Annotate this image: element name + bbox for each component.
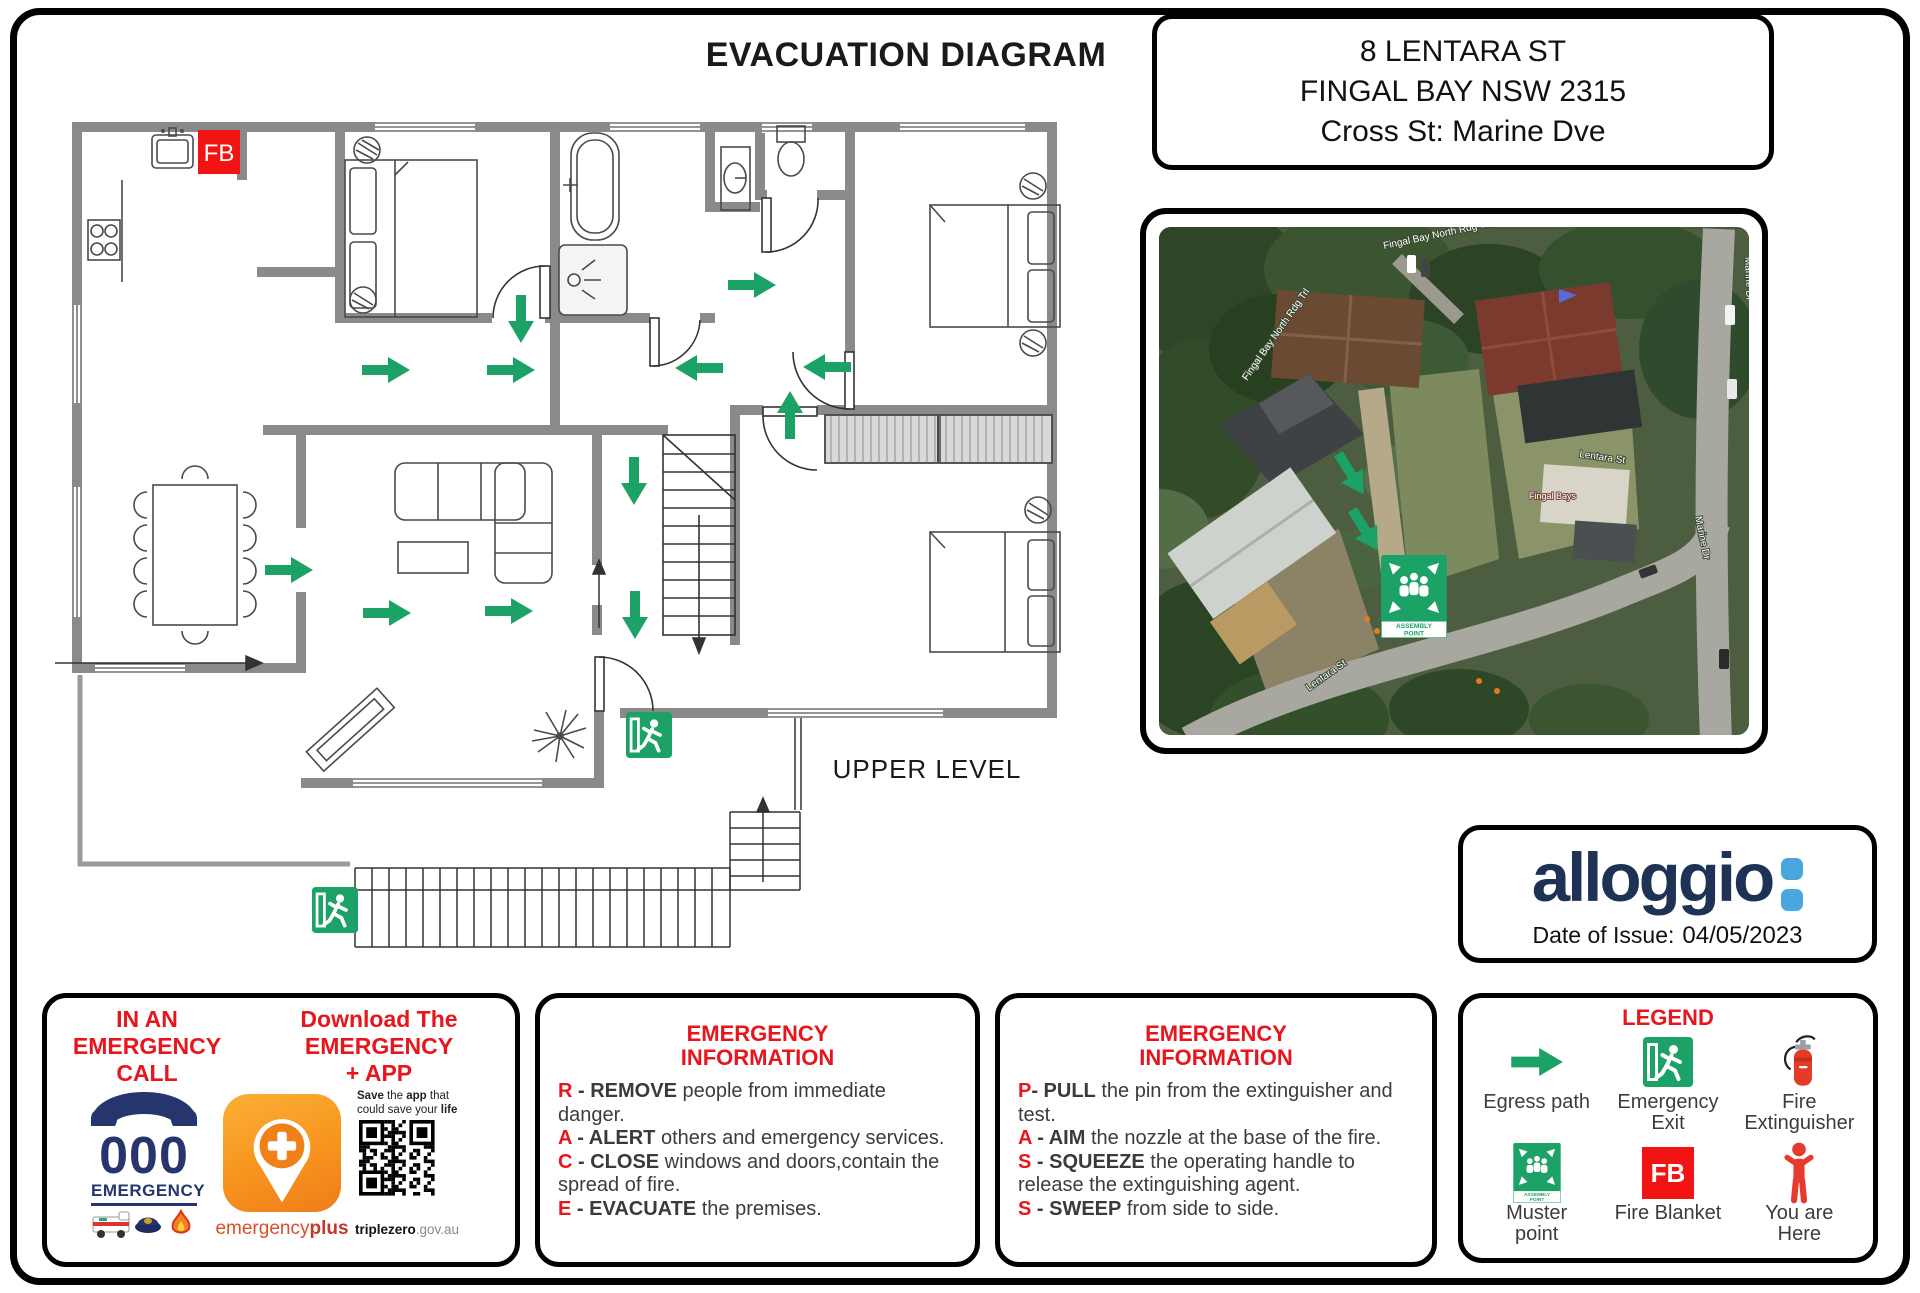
legend-label: You are Here <box>1744 1203 1854 1245</box>
race-body: R - REMOVE people from immediate danger.… <box>540 1070 975 1221</box>
call-heading-line: EMERGENCY <box>61 1033 233 1060</box>
furniture <box>88 126 1060 771</box>
legend-item-egress-path: Egress path <box>1471 1032 1602 1143</box>
info-line: R - REMOVE people from immediate danger. <box>558 1080 957 1127</box>
legend-label: Muster point <box>1482 1203 1592 1245</box>
legend-label: Egress path <box>1483 1092 1590 1113</box>
emergency-number: 000 <box>91 1131 197 1181</box>
info-line: A - AIM the nozzle at the base of the fi… <box>1018 1127 1414 1151</box>
egress-arrow-icon <box>265 557 313 583</box>
info-line: S - SWEEP from side to side. <box>1018 1198 1414 1222</box>
address-line1: 8 LENTARA ST <box>1360 32 1566 72</box>
brand-logo: alloggio <box>1532 838 1772 918</box>
external-stairs <box>355 718 801 947</box>
police-hat-icon <box>135 1218 161 1234</box>
date-of-issue-value: 04/05/2023 <box>1682 922 1802 949</box>
fire-icon <box>173 1211 190 1233</box>
evacuation-diagram-page: EVACUATION DIAGRAM 8 LENTARA ST FINGAL B… <box>0 0 1920 1293</box>
download-heading-line: Download The <box>243 1006 515 1033</box>
you-are-here-icon <box>1780 1143 1818 1203</box>
poi-label: Fingal Bays <box>1529 491 1577 501</box>
address-line3: Cross St: Marine Dve <box>1320 112 1605 152</box>
emergency-services-icons <box>91 1209 197 1239</box>
egress-arrow-icon <box>485 598 533 624</box>
download-heading-line: + APP <box>243 1060 515 1087</box>
page-title: EVACUATION DIAGRAM <box>706 36 1107 75</box>
triplezero-site: triplezero.gov.au <box>355 1222 459 1237</box>
legend-label: Emergency Exit <box>1613 1092 1723 1134</box>
pass-title-line: INFORMATION <box>1000 1046 1432 1070</box>
address-line2: FINGAL BAY NSW 2315 <box>1300 72 1626 112</box>
app-name-bold: plus <box>309 1218 348 1239</box>
call-heading-line: CALL <box>61 1060 233 1087</box>
emergency-exit-icon <box>312 887 358 933</box>
satellite-map: Fingal Bay North Rdg Trl Fingal Bay Nort… <box>1159 227 1749 735</box>
muster-point-icon <box>1513 1143 1561 1203</box>
race-title-line: INFORMATION <box>540 1046 975 1070</box>
legend-item-fire-blanket: FB Fire Blanket <box>1602 1143 1733 1254</box>
race-info-panel: EMERGENCY INFORMATION R - REMOVE people … <box>535 993 980 1267</box>
info-line: P- PULL the pin from the extinguisher an… <box>1018 1080 1414 1127</box>
level-label: UPPER LEVEL <box>833 754 1022 785</box>
app-name-regular: emergency <box>215 1218 309 1239</box>
egress-arrow-icon <box>675 355 723 381</box>
fire-blanket-icon: FB <box>1642 1143 1694 1203</box>
emergency-exit-icon <box>1643 1032 1693 1092</box>
logo-colon-icon <box>1781 858 1803 911</box>
legend-panel: LEGEND Egress path Emergency Exit Fire E… <box>1458 993 1878 1263</box>
emergency-number-caption: EMERGENCY <box>91 1181 197 1206</box>
legend-item-emergency-exit: Emergency Exit <box>1602 1032 1733 1143</box>
brand-box: alloggio Date of Issue:04/05/2023 <box>1458 825 1877 963</box>
pass-body: P- PULL the pin from the extinguisher an… <box>1000 1070 1432 1221</box>
info-line: C - CLOSE windows and doors,contain the … <box>558 1151 957 1198</box>
muster-point-icon <box>1381 555 1447 638</box>
fire-extinguisher-icon <box>1778 1032 1820 1092</box>
deck <box>78 675 350 866</box>
download-heading-line: EMERGENCY <box>243 1033 515 1060</box>
address-box: 8 LENTARA ST FINGAL BAY NSW 2315 Cross S… <box>1152 14 1774 170</box>
site-map-box: Fingal Bay North Rdg Trl Fingal Bay Nort… <box>1140 208 1768 754</box>
egress-arrow-icon <box>621 457 647 505</box>
egress-arrow-icon <box>622 591 648 639</box>
info-line: S - SQUEEZE the operating handle to rele… <box>1018 1151 1414 1198</box>
egress-arrow-icon <box>803 354 851 380</box>
qr-code <box>359 1120 435 1196</box>
race-title-line: EMERGENCY <box>540 1022 975 1046</box>
fire-blanket-badge: FB <box>1642 1147 1694 1199</box>
wardrobe <box>825 415 1052 463</box>
egress-arrow-icon <box>508 295 534 343</box>
egress-arrow-icon <box>1511 1032 1563 1092</box>
emergency-plus-app-icon <box>223 1094 341 1212</box>
legend-label: Fire Blanket <box>1615 1203 1722 1224</box>
date-of-issue-label: Date of Issue: <box>1532 922 1674 948</box>
egress-arrow-icon <box>487 357 535 383</box>
pass-title-line: EMERGENCY <box>1000 1022 1432 1046</box>
floor-plan: FB <box>50 100 1080 960</box>
legend-item-muster-point: Muster point <box>1471 1143 1602 1254</box>
egress-arrow-icon <box>363 600 411 626</box>
call-heading-line: IN AN <box>61 1006 233 1033</box>
fire-blanket-label: FB <box>204 140 235 167</box>
save-app-caption: Save the app thatcould save your life <box>357 1090 487 1117</box>
site-rest: .gov.au <box>416 1222 459 1237</box>
ambulance-icon <box>93 1212 129 1238</box>
emergency-call-panel: IN AN EMERGENCY CALL Download The EMERGE… <box>42 993 520 1267</box>
egress-arrow-icon <box>362 357 410 383</box>
interior-stairs <box>663 435 735 653</box>
info-line: E - EVACUATE the premises. <box>558 1198 957 1222</box>
pass-info-panel: EMERGENCY INFORMATION P- PULL the pin fr… <box>995 993 1437 1267</box>
egress-arrow-icon <box>728 272 776 298</box>
legend-item-you-are-here: You are Here <box>1734 1143 1865 1254</box>
phone-handset-icon <box>91 1090 197 1126</box>
emergency-exit-icon <box>626 712 672 758</box>
app-name: emergencyplus <box>209 1218 355 1240</box>
site-bold: triplezero <box>355 1222 416 1237</box>
legend-item-fire-extinguisher: Fire Extinguisher <box>1734 1032 1865 1143</box>
info-line: A - ALERT others and emergency services. <box>558 1127 957 1151</box>
plant-icon <box>532 710 586 762</box>
triple-zero-logo: 000 EMERGENCY <box>91 1090 197 1244</box>
legend-title: LEGEND <box>1463 1006 1873 1030</box>
legend-label: Fire Extinguisher <box>1744 1092 1854 1134</box>
